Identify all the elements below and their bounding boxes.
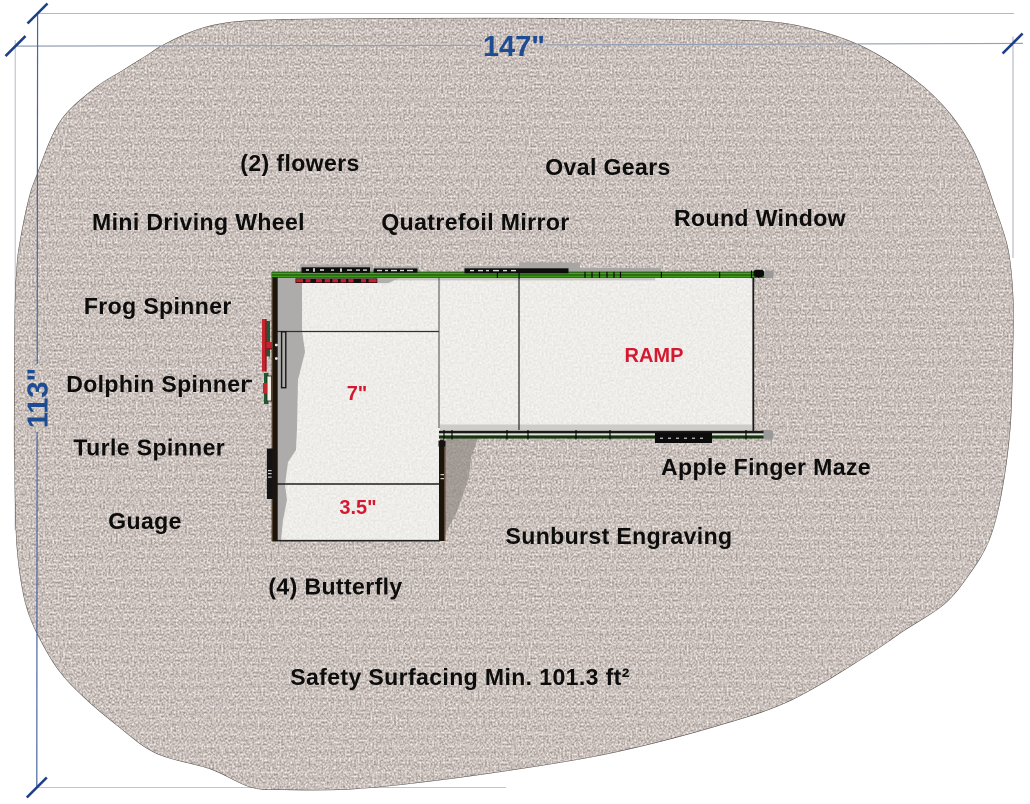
svg-text:Sunburst Engraving: Sunburst Engraving — [506, 523, 733, 549]
svg-text:(2) flowers: (2) flowers — [240, 150, 359, 176]
svg-text:Guage: Guage — [108, 508, 182, 534]
svg-text:Apple Finger Maze: Apple Finger Maze — [661, 454, 871, 480]
svg-text:Turle Spinner: Turle Spinner — [73, 435, 225, 461]
svg-text:Quatrefoil Mirror: Quatrefoil Mirror — [381, 209, 569, 235]
svg-text:7": 7" — [347, 383, 368, 405]
svg-text:Mini Driving Wheel: Mini Driving Wheel — [92, 209, 305, 235]
svg-text:Dolphin Spinner: Dolphin Spinner — [66, 371, 250, 397]
svg-text:147": 147" — [483, 31, 545, 63]
svg-text:RAMP: RAMP — [625, 345, 684, 367]
svg-text:Safety Surfacing Min. 101.3 ft: Safety Surfacing Min. 101.3 ft² — [290, 664, 630, 690]
svg-text:(4) Butterfly: (4) Butterfly — [268, 574, 402, 600]
svg-text:113": 113" — [23, 368, 55, 429]
svg-text:3.5": 3.5" — [339, 497, 376, 519]
svg-text:Oval Gears: Oval Gears — [545, 154, 670, 180]
svg-text:Frog Spinner: Frog Spinner — [84, 293, 232, 319]
svg-text:Round Window: Round Window — [674, 205, 846, 231]
